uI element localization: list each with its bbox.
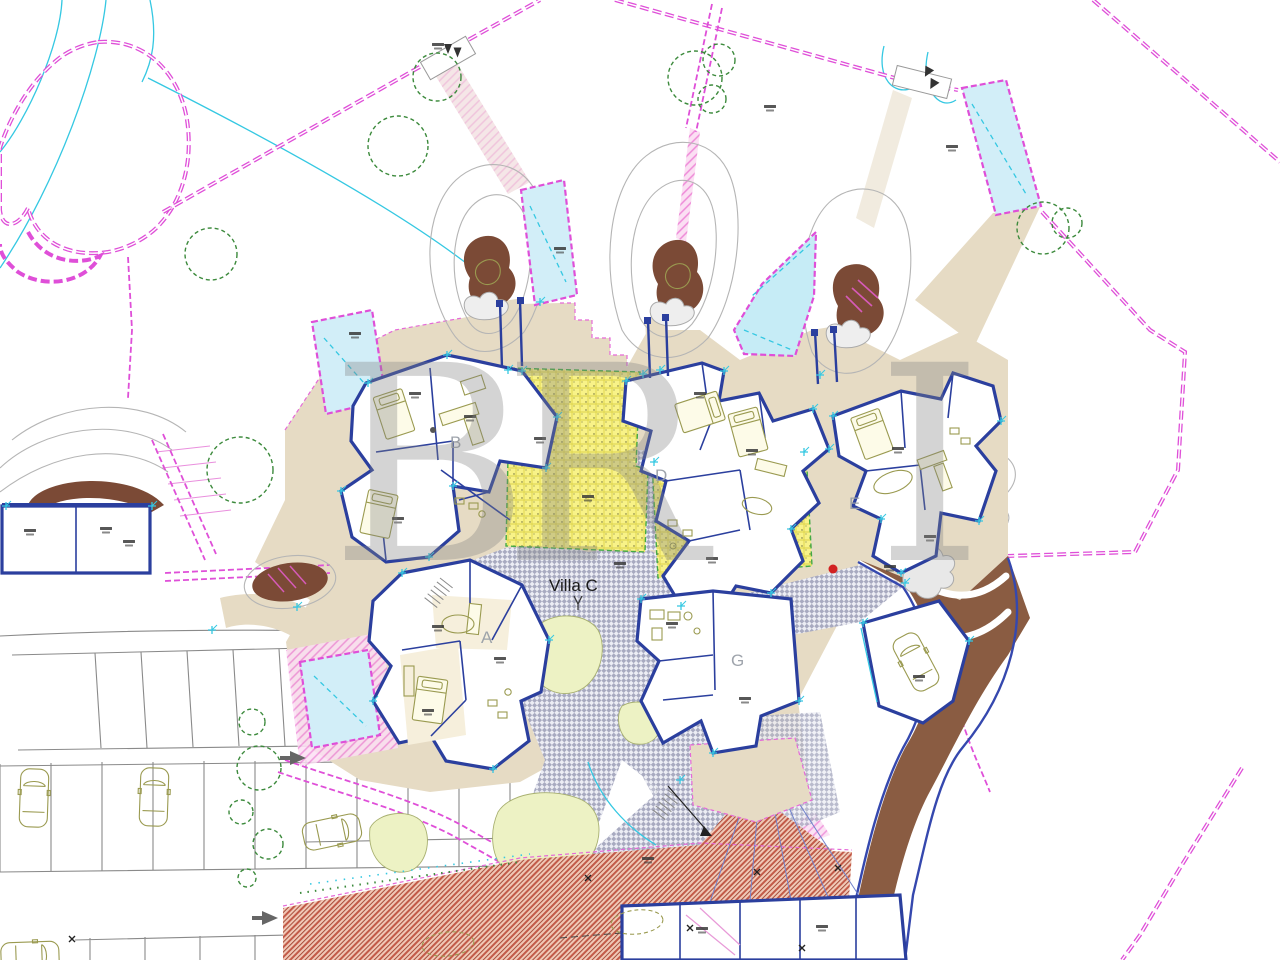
car-icon [0,939,59,960]
pool-top-right [962,80,1041,215]
pool-top-center [521,180,577,305]
site-plan-page: Villa C B D E A G B R I [0,0,1280,960]
pool-left-lower [300,650,380,748]
direction-arrow-icon [252,911,278,925]
watermark-letter-1: B [330,309,530,625]
red-marker-dot [829,565,838,574]
car-icon [17,768,51,827]
car-icon [300,810,363,853]
bottom-rooms-plan [622,895,906,960]
car-icon [137,767,171,826]
entrance-gate-2 [892,59,953,99]
unit-label-e: E [849,494,860,513]
watermark-letter-3: I [876,309,983,625]
watermark-letter-2: R [502,309,715,625]
watermark: B R I [330,309,983,625]
left-building-plan [2,503,150,573]
unit-label-g: G [731,651,744,670]
unit-label-a: A [481,628,493,647]
site-plan-drawing: Villa C B D E A G B R I [0,0,1280,960]
